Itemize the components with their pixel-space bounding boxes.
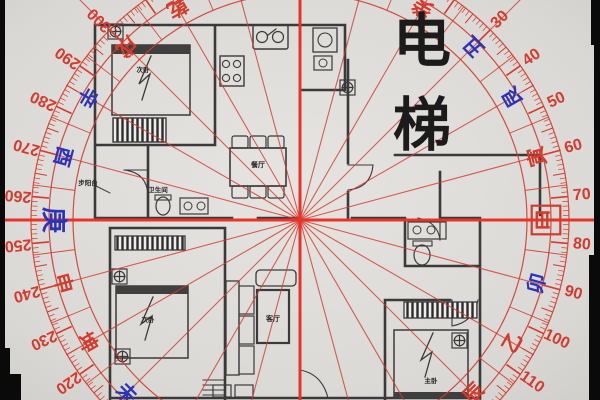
wardrobe-strip bbox=[115, 236, 185, 250]
compass-degree-label: 70 bbox=[572, 186, 591, 205]
compass-mountain-255: 庚 bbox=[39, 207, 69, 233]
right-bar-lower bbox=[589, 255, 600, 400]
left-bar-corner bbox=[0, 374, 21, 400]
label-master: 主卧 bbox=[425, 376, 439, 385]
label-balcony: 步阳台 bbox=[78, 178, 98, 187]
label-bedroom-bottom: 次卧 bbox=[142, 315, 156, 324]
right-bar-upper bbox=[591, 0, 600, 45]
screenshot-stage: 次卧 步阳台 卫生间 餐厅 次卧 客厅 主卧 30405060708090100… bbox=[0, 0, 600, 400]
left-bar bbox=[0, 0, 5, 400]
compass-degree-label: 80 bbox=[572, 235, 591, 254]
compass-mountain-75: 甲 bbox=[534, 209, 559, 231]
compass-degree-label: 250 bbox=[4, 235, 32, 254]
elevator-label: 电梯 bbox=[383, 10, 445, 178]
master-bed-footboard bbox=[394, 392, 468, 398]
compass-degree-label: 260 bbox=[4, 186, 32, 205]
scene-svg: 次卧 步阳台 卫生间 餐厅 次卧 客厅 主卧 30405060708090100… bbox=[0, 0, 600, 400]
label-bedroom-top: 次卧 bbox=[137, 65, 151, 74]
bed-bottom-headboard bbox=[116, 286, 188, 294]
label-bathroom: 卫生间 bbox=[148, 185, 168, 194]
label-dining: 餐厅 bbox=[250, 160, 265, 169]
compass-center-dot bbox=[297, 217, 303, 223]
